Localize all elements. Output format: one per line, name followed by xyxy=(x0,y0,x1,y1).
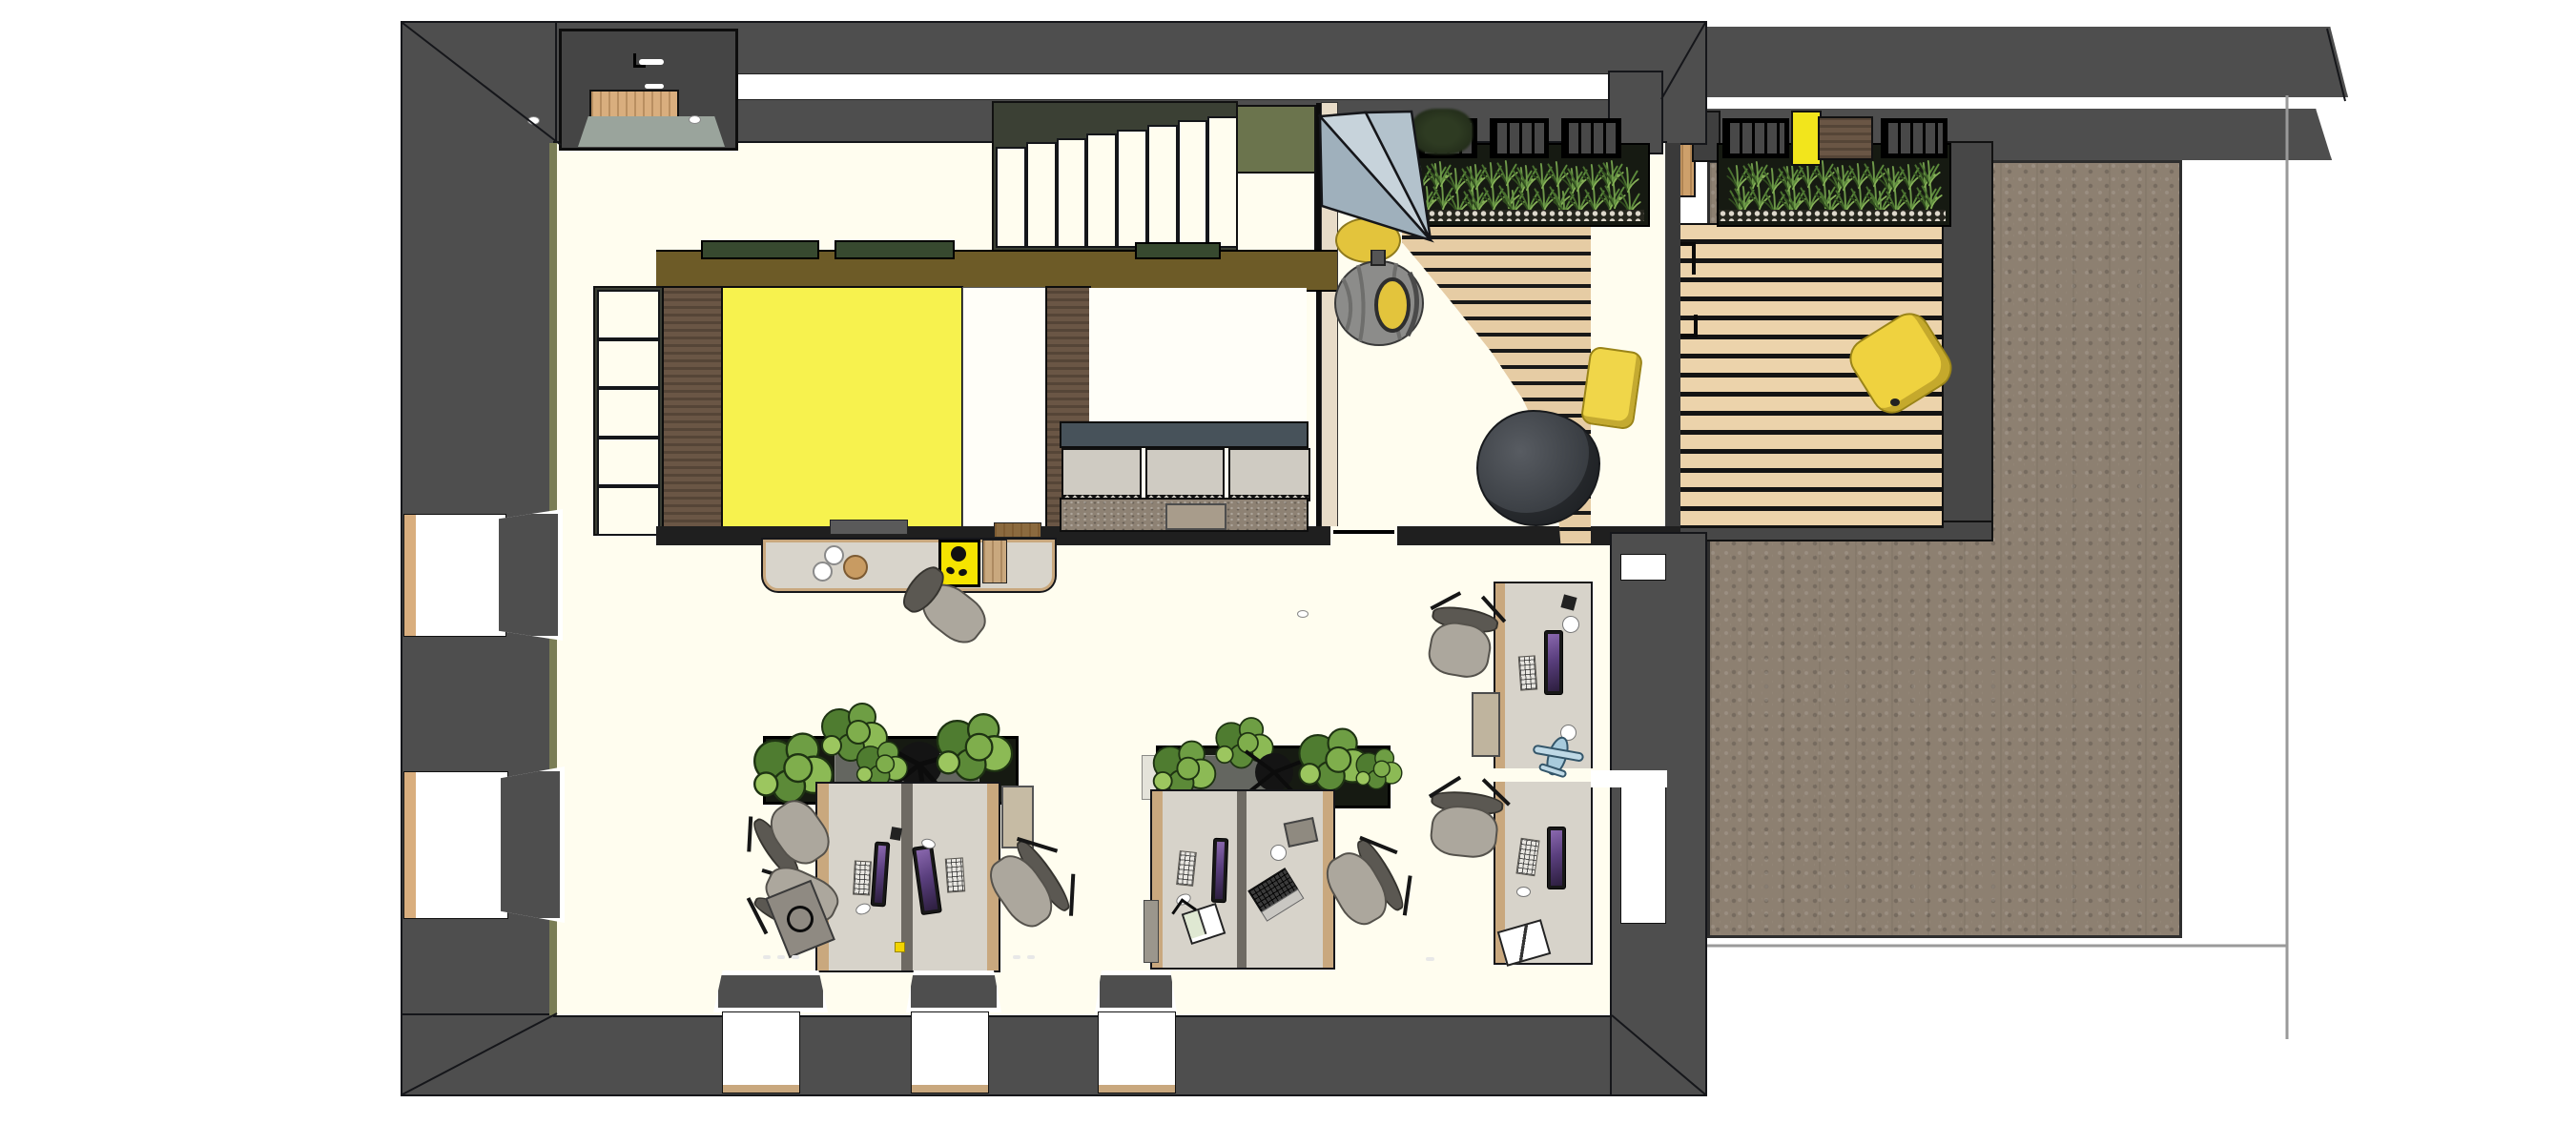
side-staircase xyxy=(595,288,662,534)
wall-block-gray xyxy=(830,520,908,535)
coffee-machine-logo xyxy=(951,546,966,562)
bottom-window-sill xyxy=(1099,1012,1175,1093)
left-window-frame xyxy=(496,766,565,923)
mouse xyxy=(1516,887,1531,897)
booth-tray xyxy=(1165,503,1226,530)
bag xyxy=(783,902,817,936)
stair-tread xyxy=(996,147,1026,248)
office-chair xyxy=(1425,788,1510,861)
coffee-bean xyxy=(958,568,968,577)
stair-landing-olive xyxy=(1238,107,1314,174)
credenza-wood-rack xyxy=(982,540,1007,583)
yellow-pillow xyxy=(1580,346,1644,431)
keyboard xyxy=(945,857,965,892)
monitor-screen xyxy=(875,846,886,903)
monitor xyxy=(1212,839,1227,902)
desk-center-divider xyxy=(1237,791,1247,968)
wall-spec xyxy=(1027,955,1035,959)
stair-tread xyxy=(1207,116,1238,248)
plant-tray xyxy=(1490,118,1550,158)
stair-tread xyxy=(1026,142,1057,248)
stair-tread xyxy=(1178,120,1208,248)
hanging-egg-chair xyxy=(1329,250,1429,351)
right-wall-window xyxy=(1621,555,1665,580)
sticky-note xyxy=(895,942,905,952)
bottom-window-sill xyxy=(912,1012,988,1093)
booth-cushion xyxy=(1061,448,1142,501)
bottom-window-frame xyxy=(713,970,828,1012)
stair-tread xyxy=(1057,138,1087,248)
bottom-window-sill xyxy=(723,1012,799,1093)
door-swing-icon xyxy=(639,59,664,65)
main-staircase xyxy=(994,103,1236,250)
wall-block-wood xyxy=(994,522,1041,538)
door-swing-icon-2 xyxy=(645,84,664,89)
mug xyxy=(1270,845,1287,861)
downlight xyxy=(1297,610,1309,618)
plant-tray xyxy=(1881,118,1947,158)
right-wall-door-opening xyxy=(1621,787,1665,923)
booth-bench xyxy=(1061,423,1307,446)
bottom-window-frame xyxy=(1095,970,1177,1012)
downlight xyxy=(689,115,701,124)
desk-disc xyxy=(1562,616,1579,633)
wood-board xyxy=(843,555,868,580)
pebble-strip xyxy=(1719,210,1946,221)
downlight xyxy=(527,116,540,125)
right-wall-gap xyxy=(1591,770,1667,787)
keyboard xyxy=(853,861,872,896)
desk-cabinet xyxy=(1472,692,1500,757)
floor-plan-canvas xyxy=(0,0,2576,1144)
booth-floor xyxy=(1089,288,1307,423)
stair-tread xyxy=(597,486,660,536)
glazing-segment xyxy=(1135,242,1221,259)
keyboard xyxy=(1176,850,1197,887)
meeting-room-yellow-floor xyxy=(723,288,961,526)
office-chair xyxy=(1421,603,1504,683)
booth-cushion xyxy=(1145,448,1225,501)
lounge-door-gap xyxy=(1330,526,1397,545)
wall-spec xyxy=(1426,957,1434,961)
wall-spec xyxy=(792,955,799,959)
left-window-opening xyxy=(404,515,505,636)
desk-phone xyxy=(890,827,902,841)
meeting-room-left-wall xyxy=(664,288,721,530)
pebble-strip xyxy=(1402,210,1644,221)
wall-spec xyxy=(1013,955,1020,959)
lounge-door-leaf xyxy=(1333,530,1394,534)
booth-cushion xyxy=(1228,448,1310,501)
wall-strip-lounge-deck xyxy=(1665,143,1680,534)
stair-tread xyxy=(597,290,660,339)
wood-wall-segment xyxy=(1820,118,1871,158)
glazing-segment xyxy=(835,240,955,259)
stair-tread xyxy=(597,388,660,438)
left-window-frame xyxy=(494,509,563,641)
stair-tread xyxy=(1147,125,1178,248)
grass-tuft xyxy=(1618,168,1638,192)
terrace-wall-window-band xyxy=(1661,97,2332,109)
deck-cushion-dot xyxy=(1890,398,1900,406)
plant-tray xyxy=(1561,118,1621,158)
wall-spec xyxy=(763,955,771,959)
terrace-north-wall-upper xyxy=(1661,27,2348,97)
glazing-segment xyxy=(701,240,819,259)
entrance-threshold xyxy=(591,92,677,116)
wall-bottom xyxy=(402,1015,1705,1094)
stair-tread xyxy=(597,339,660,389)
stair-tread xyxy=(597,438,660,487)
monitor xyxy=(1548,827,1565,889)
left-window-opening xyxy=(404,772,507,918)
bottom-window-frame xyxy=(906,970,1001,1012)
desk-cabinet xyxy=(1144,900,1159,963)
yellow-column xyxy=(1791,111,1822,166)
stair-landing-lower xyxy=(1238,174,1314,250)
cup xyxy=(813,562,833,582)
desk-pair xyxy=(817,784,999,970)
monitor xyxy=(1545,631,1562,694)
top-window-band xyxy=(736,74,1610,99)
teepee-tent xyxy=(1316,109,1434,244)
stair-tread xyxy=(1086,133,1117,248)
stair-tread xyxy=(1117,130,1147,248)
wall-spec xyxy=(777,955,785,959)
entrance-landing xyxy=(578,116,725,147)
meeting-room-white-panel xyxy=(963,288,1045,526)
plant-tray xyxy=(1722,118,1789,158)
keyboard xyxy=(1518,655,1537,690)
